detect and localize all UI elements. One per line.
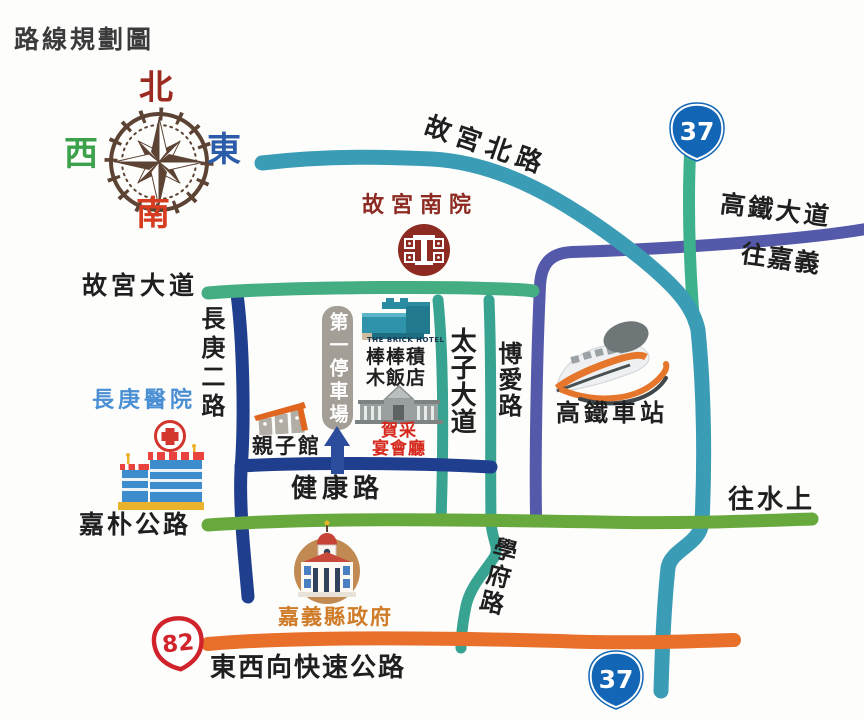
banquet-label: 賀采 宴會廳	[366, 422, 432, 459]
hotel-zh-line1: 棒棒積	[366, 347, 426, 368]
hospital-label: 長庚醫院	[92, 389, 196, 413]
shield-82: 82	[152, 616, 205, 672]
train-icon	[556, 316, 666, 403]
road-jiapu-highway	[208, 519, 812, 525]
road-label-taizi-boulevard: 太子大道	[447, 327, 475, 435]
road-jiankang	[241, 463, 491, 467]
shield-37-bottom-number: 37	[599, 665, 634, 694]
road-label-jiankang: 健康路	[291, 475, 384, 503]
road-east-west-expressway	[208, 638, 734, 644]
road-taizi-boulevard	[438, 300, 443, 521]
banquet-line1: 賀采	[366, 422, 432, 440]
road-label-changgung-2nd: 長庚二路	[197, 306, 223, 422]
hsr-station-label: 高鐵車站	[556, 401, 668, 427]
road-label-gugong-boulevard: 故宮大道	[82, 272, 198, 299]
road-label-to-shuishang: 往水上	[728, 486, 815, 514]
shield-37-top-number: 37	[680, 117, 715, 146]
family-center-icon	[254, 402, 308, 435]
road-label-boai: 博愛路	[494, 341, 520, 419]
parking-label: 第一停車場	[327, 312, 348, 427]
compass-label-west: 西	[64, 136, 98, 173]
map-canvas: 37 37 82	[0, 0, 864, 720]
shield-37-bottom: 37	[589, 651, 643, 709]
banquet-hall-icon	[355, 386, 443, 424]
museum-seal-icon	[398, 224, 450, 276]
hotel-zh-line2: 木飯店	[366, 368, 426, 389]
county-gov-icon	[294, 521, 360, 605]
road-changgung-2nd	[237, 294, 248, 597]
brick-hotel-icon	[362, 298, 430, 340]
map-title: 路線規劃圖	[14, 26, 154, 53]
route-map: 37 37 82 路線規劃圖 北 西 東 南 故宮北路 高鐵大道 往嘉義 故宮南…	[0, 0, 864, 720]
museum-label: 故宮南院	[362, 194, 478, 218]
county-gov-label: 嘉義縣政府	[278, 606, 393, 629]
hotel-en-label: THE BRICK HOTEL	[367, 337, 445, 345]
compass-label-east: 東	[207, 132, 241, 169]
hotel-zh-label: 棒棒積 木飯店	[366, 347, 426, 388]
shield-37-top: 37	[670, 103, 724, 161]
hospital-icon	[118, 422, 204, 511]
road-gugong-boulevard	[208, 288, 533, 293]
compass-label-south: 南	[136, 196, 170, 233]
road-label-jiapu-highway: 嘉朴公路	[79, 511, 191, 538]
shield-82-number: 82	[161, 629, 195, 658]
family-center-label: 親子館	[252, 435, 321, 458]
banquet-line2: 宴會廳	[366, 440, 432, 458]
compass-label-north: 北	[139, 70, 173, 107]
road-label-east-west-expressway: 東西向快速公路	[210, 654, 406, 682]
